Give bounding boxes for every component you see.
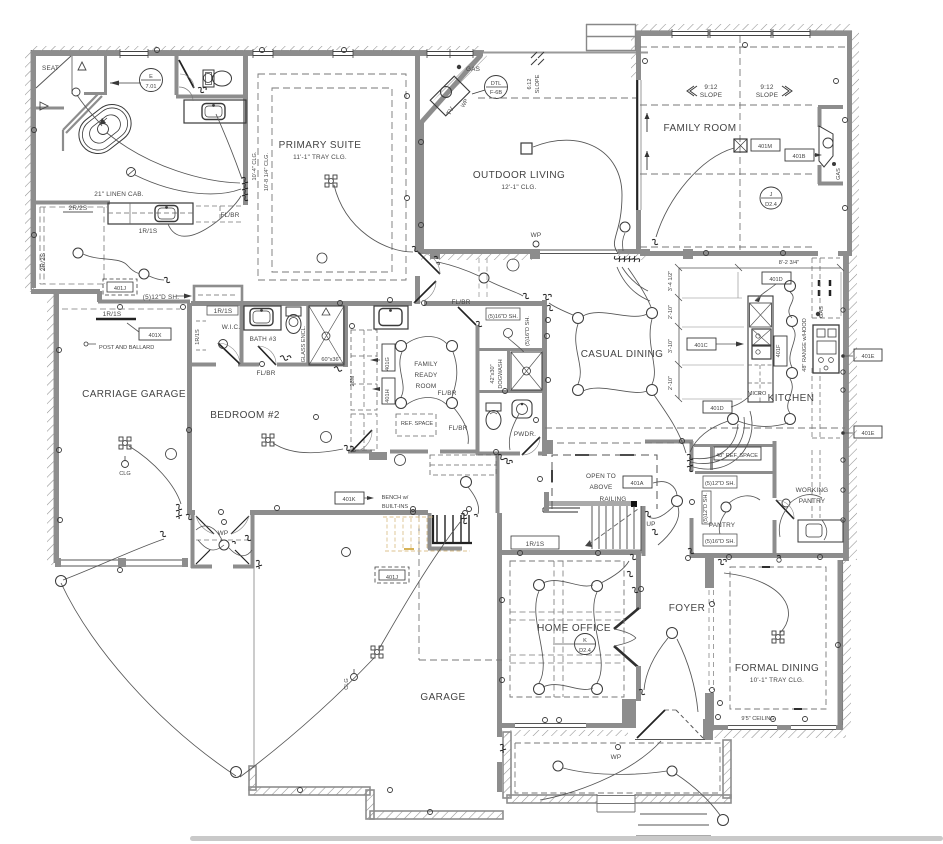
svg-text:3'-4 1/2": 3'-4 1/2" bbox=[668, 271, 674, 291]
svg-text:3'-10": 3'-10" bbox=[668, 339, 674, 353]
svg-text:401J: 401J bbox=[114, 286, 126, 292]
svg-text:28M: 28M bbox=[350, 375, 356, 386]
svg-text:9'5" CEILING: 9'5" CEILING bbox=[741, 716, 774, 722]
svg-text:WP: WP bbox=[531, 232, 542, 239]
svg-text:48" REF. SPACE: 48" REF. SPACE bbox=[716, 453, 758, 459]
svg-text:CLG: CLG bbox=[119, 471, 131, 477]
svg-text:PANTRY: PANTRY bbox=[709, 522, 736, 529]
svg-text:1R/1S: 1R/1S bbox=[195, 329, 201, 345]
svg-text:FL/BR: FL/BR bbox=[451, 299, 470, 306]
svg-text:BEDROOM #2: BEDROOM #2 bbox=[210, 410, 280, 421]
svg-text:WP: WP bbox=[611, 754, 622, 761]
svg-text:BATH #3: BATH #3 bbox=[250, 336, 277, 343]
svg-text:11'-1" TRAY CLG.: 11'-1" TRAY CLG. bbox=[293, 154, 347, 161]
svg-text:9:12: 9:12 bbox=[704, 84, 717, 91]
svg-text:10'-4" CLG.: 10'-4" CLG. bbox=[252, 151, 258, 180]
svg-text:(5)12"D SH.: (5)12"D SH. bbox=[143, 294, 179, 301]
svg-text:9:12: 9:12 bbox=[760, 84, 773, 91]
svg-text:GAS: GAS bbox=[819, 306, 825, 318]
svg-text:6:12: 6:12 bbox=[527, 79, 533, 90]
svg-text:401E: 401E bbox=[861, 354, 874, 360]
svg-text:PANTRY: PANTRY bbox=[799, 498, 826, 505]
svg-text:(5)16"D SH.: (5)16"D SH. bbox=[525, 316, 531, 346]
svg-text:FL/BR: FL/BR bbox=[256, 370, 275, 377]
svg-text:PRIMARY SUITE: PRIMARY SUITE bbox=[279, 140, 362, 151]
svg-text:OUTDOOR LIVING: OUTDOOR LIVING bbox=[473, 170, 565, 181]
svg-text:RAILING: RAILING bbox=[600, 496, 627, 503]
svg-text:OPEN TO: OPEN TO bbox=[586, 473, 616, 480]
svg-text:F-6B: F-6B bbox=[490, 90, 502, 96]
svg-text:SLOPE: SLOPE bbox=[535, 74, 541, 93]
svg-text:FAMILY ROOM: FAMILY ROOM bbox=[664, 123, 737, 134]
svg-text:401E: 401E bbox=[861, 431, 874, 437]
svg-text:SLOPE: SLOPE bbox=[700, 92, 722, 99]
svg-text:BUILT-INS: BUILT-INS bbox=[382, 504, 409, 510]
svg-text:DTL: DTL bbox=[491, 81, 502, 87]
svg-text:FOYER: FOYER bbox=[669, 603, 705, 614]
svg-text:W.I.C.: W.I.C. bbox=[222, 324, 241, 331]
svg-text:WORKING: WORKING bbox=[796, 487, 829, 494]
svg-text:SEAT: SEAT bbox=[42, 65, 59, 72]
svg-text:BENCH w/: BENCH w/ bbox=[382, 495, 409, 501]
svg-text:FORMAL DINING: FORMAL DINING bbox=[735, 663, 819, 674]
svg-text:401G: 401G bbox=[385, 357, 391, 371]
svg-text:48" RANGE w/HOOD: 48" RANGE w/HOOD bbox=[802, 318, 808, 372]
svg-text:J: J bbox=[770, 192, 773, 198]
svg-text:2'-10": 2'-10" bbox=[668, 305, 674, 319]
svg-text:2R/2S: 2R/2S bbox=[69, 205, 88, 212]
svg-text:8'-2 3/4": 8'-2 3/4" bbox=[779, 260, 799, 266]
svg-text:KITCHEN: KITCHEN bbox=[768, 393, 815, 404]
svg-text:401D: 401D bbox=[710, 406, 723, 412]
svg-text:42"x30": 42"x30" bbox=[490, 364, 496, 383]
svg-text:12'-1" CLG.: 12'-1" CLG. bbox=[501, 184, 536, 191]
svg-text:READY: READY bbox=[414, 372, 438, 379]
svg-text:1R/1S: 1R/1S bbox=[214, 308, 233, 315]
svg-text:CLG: CLG bbox=[344, 678, 350, 690]
svg-text:D2.4: D2.4 bbox=[579, 648, 591, 654]
svg-text:401C: 401C bbox=[694, 343, 707, 349]
svg-text:PWDR.: PWDR. bbox=[514, 431, 536, 438]
svg-text:GAS: GAS bbox=[466, 66, 480, 73]
svg-text:(5)16"D SH.: (5)16"D SH. bbox=[488, 314, 518, 320]
svg-text:1R/1S: 1R/1S bbox=[139, 228, 158, 235]
svg-text:GLASS ENCL.: GLASS ENCL. bbox=[301, 325, 307, 362]
svg-text:UP: UP bbox=[646, 521, 655, 528]
svg-text:401F: 401F bbox=[776, 344, 782, 357]
svg-text:2R/2S: 2R/2S bbox=[40, 253, 47, 272]
svg-text:(5)16"D SH.: (5)16"D SH. bbox=[705, 539, 735, 545]
svg-text:401J: 401J bbox=[386, 575, 398, 581]
svg-text:401H: 401H bbox=[385, 389, 391, 402]
svg-text:K: K bbox=[583, 638, 587, 644]
svg-text:21" LINEN CAB.: 21" LINEN CAB. bbox=[94, 191, 143, 198]
svg-text:REF. SPACE: REF. SPACE bbox=[401, 421, 433, 427]
svg-text:(5)12"D SH.: (5)12"D SH. bbox=[703, 493, 709, 523]
svg-text:FL/BR: FL/BR bbox=[437, 390, 456, 397]
svg-text:401M: 401M bbox=[758, 144, 772, 150]
svg-text:E: E bbox=[149, 74, 153, 80]
svg-text:DOGWASH: DOGWASH bbox=[498, 359, 504, 388]
svg-text:401D: 401D bbox=[769, 277, 782, 283]
svg-text:D2.4: D2.4 bbox=[765, 202, 777, 208]
svg-text:ROOM: ROOM bbox=[416, 383, 437, 390]
svg-text:401X: 401X bbox=[148, 333, 161, 339]
svg-text:1R/1S: 1R/1S bbox=[103, 311, 122, 318]
svg-text:10'-1" TRAY CLG.: 10'-1" TRAY CLG. bbox=[750, 677, 804, 684]
svg-text:(5)12"D SH.: (5)12"D SH. bbox=[705, 481, 735, 487]
svg-text:FAMILY: FAMILY bbox=[414, 361, 438, 368]
svg-text:2'-10": 2'-10" bbox=[668, 376, 674, 390]
svg-text:ABOVE: ABOVE bbox=[589, 484, 612, 491]
svg-text:SLOPE: SLOPE bbox=[756, 92, 778, 99]
svg-text:MICRO: MICRO bbox=[748, 391, 767, 397]
svg-text:1R/1S: 1R/1S bbox=[526, 541, 545, 548]
svg-text:WP: WP bbox=[218, 530, 229, 537]
svg-text:FL/BR: FL/BR bbox=[220, 212, 239, 219]
svg-text:FL/BR: FL/BR bbox=[448, 425, 467, 432]
svg-text:7.01: 7.01 bbox=[146, 84, 157, 90]
svg-text:GARAGE: GARAGE bbox=[420, 692, 465, 703]
svg-text:GAS: GAS bbox=[836, 168, 842, 180]
svg-text:POST AND BALLARD: POST AND BALLARD bbox=[99, 345, 154, 351]
svg-text:401A: 401A bbox=[630, 481, 643, 487]
svg-text:401B: 401B bbox=[792, 154, 805, 160]
svg-text:401K: 401K bbox=[342, 497, 355, 503]
svg-text:10'-8 1/4" CLG.: 10'-8 1/4" CLG. bbox=[264, 152, 270, 191]
svg-text:CARRIAGE GARAGE: CARRIAGE GARAGE bbox=[82, 389, 186, 400]
svg-text:CASUAL DINING: CASUAL DINING bbox=[581, 349, 664, 360]
svg-text:60"x36": 60"x36" bbox=[321, 357, 340, 363]
svg-text:HOME OFFICE: HOME OFFICE bbox=[537, 623, 611, 634]
